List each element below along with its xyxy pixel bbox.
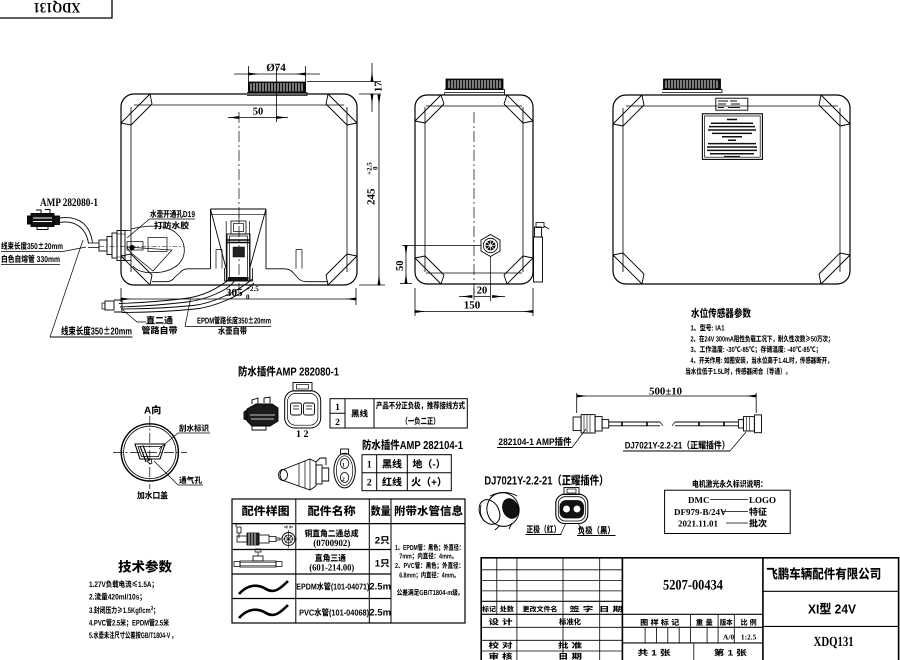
svg-text:(601-214.00): (601-214.00) <box>309 564 354 574</box>
svg-text:比 例: 比 例 <box>741 617 757 628</box>
svg-text:共 1 张: 共 1 张 <box>638 648 671 659</box>
svg-text:图 样 标 记: 图 样 标 记 <box>640 617 680 628</box>
svg-text:批次: 批次 <box>749 517 767 530</box>
svg-text:设 计: 设 计 <box>489 617 514 628</box>
svg-text:A向: A向 <box>144 402 161 417</box>
svg-text:2.5m: 2.5m <box>369 605 391 619</box>
svg-text:审 核: 审 核 <box>489 651 514 660</box>
svg-text:管路自带: 管路自带 <box>141 324 177 337</box>
svg-text:正极（红）: 正极（红） <box>526 523 560 536</box>
svg-text:地（-）: 地（-） <box>412 456 445 471</box>
svg-text:加水口盖: 加水口盖 <box>137 490 168 502</box>
svg-text:公差满足GB/T1804-m级。: 公差满足GB/T1804-m级。 <box>397 588 464 598</box>
svg-text:2、在24V 300mA阻性负载工况下，耐久性次数≥50万次: 2、在24V 300mA阻性负载工况下，耐久性次数≥50万次； <box>691 334 834 345</box>
svg-text:500±10: 500±10 <box>649 387 682 398</box>
svg-text:1只: 1只 <box>375 556 390 570</box>
svg-text:2: 2 <box>335 418 340 428</box>
svg-text:附带水管信息: 附带水管信息 <box>394 503 463 519</box>
svg-text:50: 50 <box>395 261 406 272</box>
svg-text:DJ7021Y-2.2-21（正耀插件）: DJ7021Y-2.2-21（正耀插件） <box>625 438 730 452</box>
svg-text:6.8mm；内直径：4mm。: 6.8mm；内直径：4mm。 <box>399 571 459 581</box>
svg-text:A/0: A/0 <box>723 633 734 642</box>
svg-text:技术参数: 技术参数 <box>118 556 172 576</box>
svg-text:XDQ131: XDQ131 <box>34 0 81 15</box>
svg-text:(0700902): (0700902) <box>313 539 350 549</box>
svg-text:0: 0 <box>246 293 250 301</box>
svg-text:EPDM水管(101-04071): EPDM水管(101-04071) <box>296 581 369 593</box>
svg-text:更改文件名: 更改文件名 <box>523 605 558 615</box>
svg-text:红线: 红线 <box>382 474 402 489</box>
svg-text:（一负二正）: （一负二正） <box>402 415 440 427</box>
svg-text:LOGO: LOGO <box>749 495 776 505</box>
svg-text:1 2: 1 2 <box>296 429 309 440</box>
svg-text:数量: 数量 <box>371 503 391 519</box>
svg-text:1:2.5: 1:2.5 <box>741 633 757 642</box>
svg-text:日 期: 日 期 <box>558 651 583 660</box>
svg-text:DJ7021Y-2.2-21（正耀插件）: DJ7021Y-2.2-21（正耀插件） <box>484 472 608 489</box>
svg-text:3、工作温度: -30℃-85℃；存储温度: -40℃-85: 3、工作温度: -30℃-85℃；存储温度: -40℃-85℃； <box>691 344 822 355</box>
svg-text:配件名称: 配件名称 <box>308 503 357 519</box>
svg-text:1: 1 <box>367 460 372 471</box>
svg-text:通气孔: 通气孔 <box>179 475 202 486</box>
svg-text:5.水壶未注尺寸公差按GB/T1804-V 。: 5.水壶未注尺寸公差按GB/T1804-V 。 <box>89 630 177 641</box>
svg-text:防水插件AMP 282104-1: 防水插件AMP 282104-1 <box>362 437 463 453</box>
svg-text:处数: 处数 <box>500 605 514 615</box>
svg-text:产品不分正负极，推荐接线方式: 产品不分正负极，推荐接线方式 <box>376 400 465 412</box>
svg-text:2: 2 <box>367 478 372 489</box>
svg-text:刮水标识: 刮水标识 <box>179 423 209 434</box>
svg-text:铜直角二通总成: 铜直角二通总成 <box>305 528 359 540</box>
svg-text:1.27V负载电流≤1.5A；: 1.27V负载电流≤1.5A； <box>89 579 158 590</box>
svg-text:DMC: DMC <box>688 495 710 505</box>
svg-text:7mm；内直径：4mm。: 7mm；内直径：4mm。 <box>399 552 457 562</box>
svg-text:标准化: 标准化 <box>559 617 581 628</box>
svg-text:3.封闭压力≥1.5Kgf/cm²；: 3.封闭压力≥1.5Kgf/cm²； <box>89 605 159 616</box>
svg-text:DF979-B/24V: DF979-B/24V <box>674 507 727 517</box>
svg-text:4、开关作用: 如图安装，当水位高于1.4L时，传感器断开，: 4、开关作用: 如图安装，当水位高于1.4L时，传感器断开， <box>691 355 833 366</box>
svg-text:4.PVC管2.5米；EPDM管2.5米: 4.PVC管2.5米；EPDM管2.5米 <box>89 618 169 629</box>
svg-text:2021.11.01: 2021.11.01 <box>678 519 719 529</box>
svg-text:50: 50 <box>253 107 264 118</box>
svg-text:配件样图: 配件样图 <box>242 503 290 519</box>
svg-text:PVC水管(101-04068): PVC水管(101-04068) <box>299 607 369 619</box>
svg-text:2.流量420ml/10s；: 2.流量420ml/10s； <box>89 592 146 603</box>
svg-text:5207-00434: 5207-00434 <box>663 578 723 594</box>
svg-text:日 期: 日 期 <box>599 605 623 615</box>
svg-text:2.5m: 2.5m <box>369 579 391 593</box>
svg-text:校 对: 校 对 <box>489 640 514 651</box>
svg-text:线束长度350±20mm: 线束长度350±20mm <box>1 240 63 252</box>
svg-text:17: 17 <box>374 82 385 93</box>
svg-text:电机激光永久标识说明：: 电机激光永久标识说明： <box>692 478 767 490</box>
svg-text:1: 1 <box>335 403 340 413</box>
svg-text:签 字: 签 字 <box>569 605 593 615</box>
svg-text:水位传感器参数: 水位传感器参数 <box>691 305 751 321</box>
svg-text:火（+）: 火（+） <box>411 474 447 489</box>
svg-text:批 准: 批 准 <box>558 640 583 651</box>
svg-text:黑线: 黑线 <box>351 408 369 420</box>
svg-text:2只: 2只 <box>375 533 390 547</box>
svg-text:当水位低于1.5L时，传感器闭合（导通）。: 当水位低于1.5L时，传感器闭合（导通）。 <box>685 366 791 377</box>
svg-text:版本: 版本 <box>720 617 734 628</box>
svg-text:XI型 24V: XI型 24V <box>808 599 856 618</box>
svg-text:1: 1 <box>342 463 345 469</box>
svg-text:防水插件AMP 282080-1: 防水插件AMP 282080-1 <box>238 364 339 380</box>
svg-text:150: 150 <box>464 300 481 312</box>
svg-text:第 1 张: 第 1 张 <box>714 648 747 659</box>
svg-text:282104-1 AMP插件: 282104-1 AMP插件 <box>498 434 571 448</box>
svg-text:245: 245 <box>366 188 378 205</box>
svg-text:20: 20 <box>477 286 488 297</box>
svg-text:重 量: 重 量 <box>696 617 714 628</box>
svg-text:水壶开通孔D19: 水壶开通孔D19 <box>150 208 195 220</box>
svg-text:AMP 282080-1: AMP 282080-1 <box>40 197 98 209</box>
svg-text:+2.5: +2.5 <box>246 285 259 293</box>
svg-text:2: 2 <box>342 477 345 483</box>
svg-text:标记: 标记 <box>482 605 496 615</box>
svg-text:2、PVC管：黑色；外直径：: 2、PVC管：黑色；外直径： <box>395 561 464 571</box>
svg-text:黑线: 黑线 <box>382 456 402 471</box>
svg-text:直角三通: 直角三通 <box>315 552 346 564</box>
svg-text:XDQ131: XDQ131 <box>814 635 854 650</box>
svg-text:打防水胶: 打防水胶 <box>154 220 189 232</box>
svg-text:飞鹏车辆配件有限公司: 飞鹏车辆配件有限公司 <box>766 564 881 583</box>
svg-text:白色自熔管 330mm: 白色自熔管 330mm <box>1 253 60 265</box>
svg-text:0: 0 <box>372 166 380 170</box>
svg-text:线束长度350±20mm: 线束长度350±20mm <box>61 323 132 338</box>
svg-text:1、型号: IA1: 1、型号: IA1 <box>691 323 726 334</box>
